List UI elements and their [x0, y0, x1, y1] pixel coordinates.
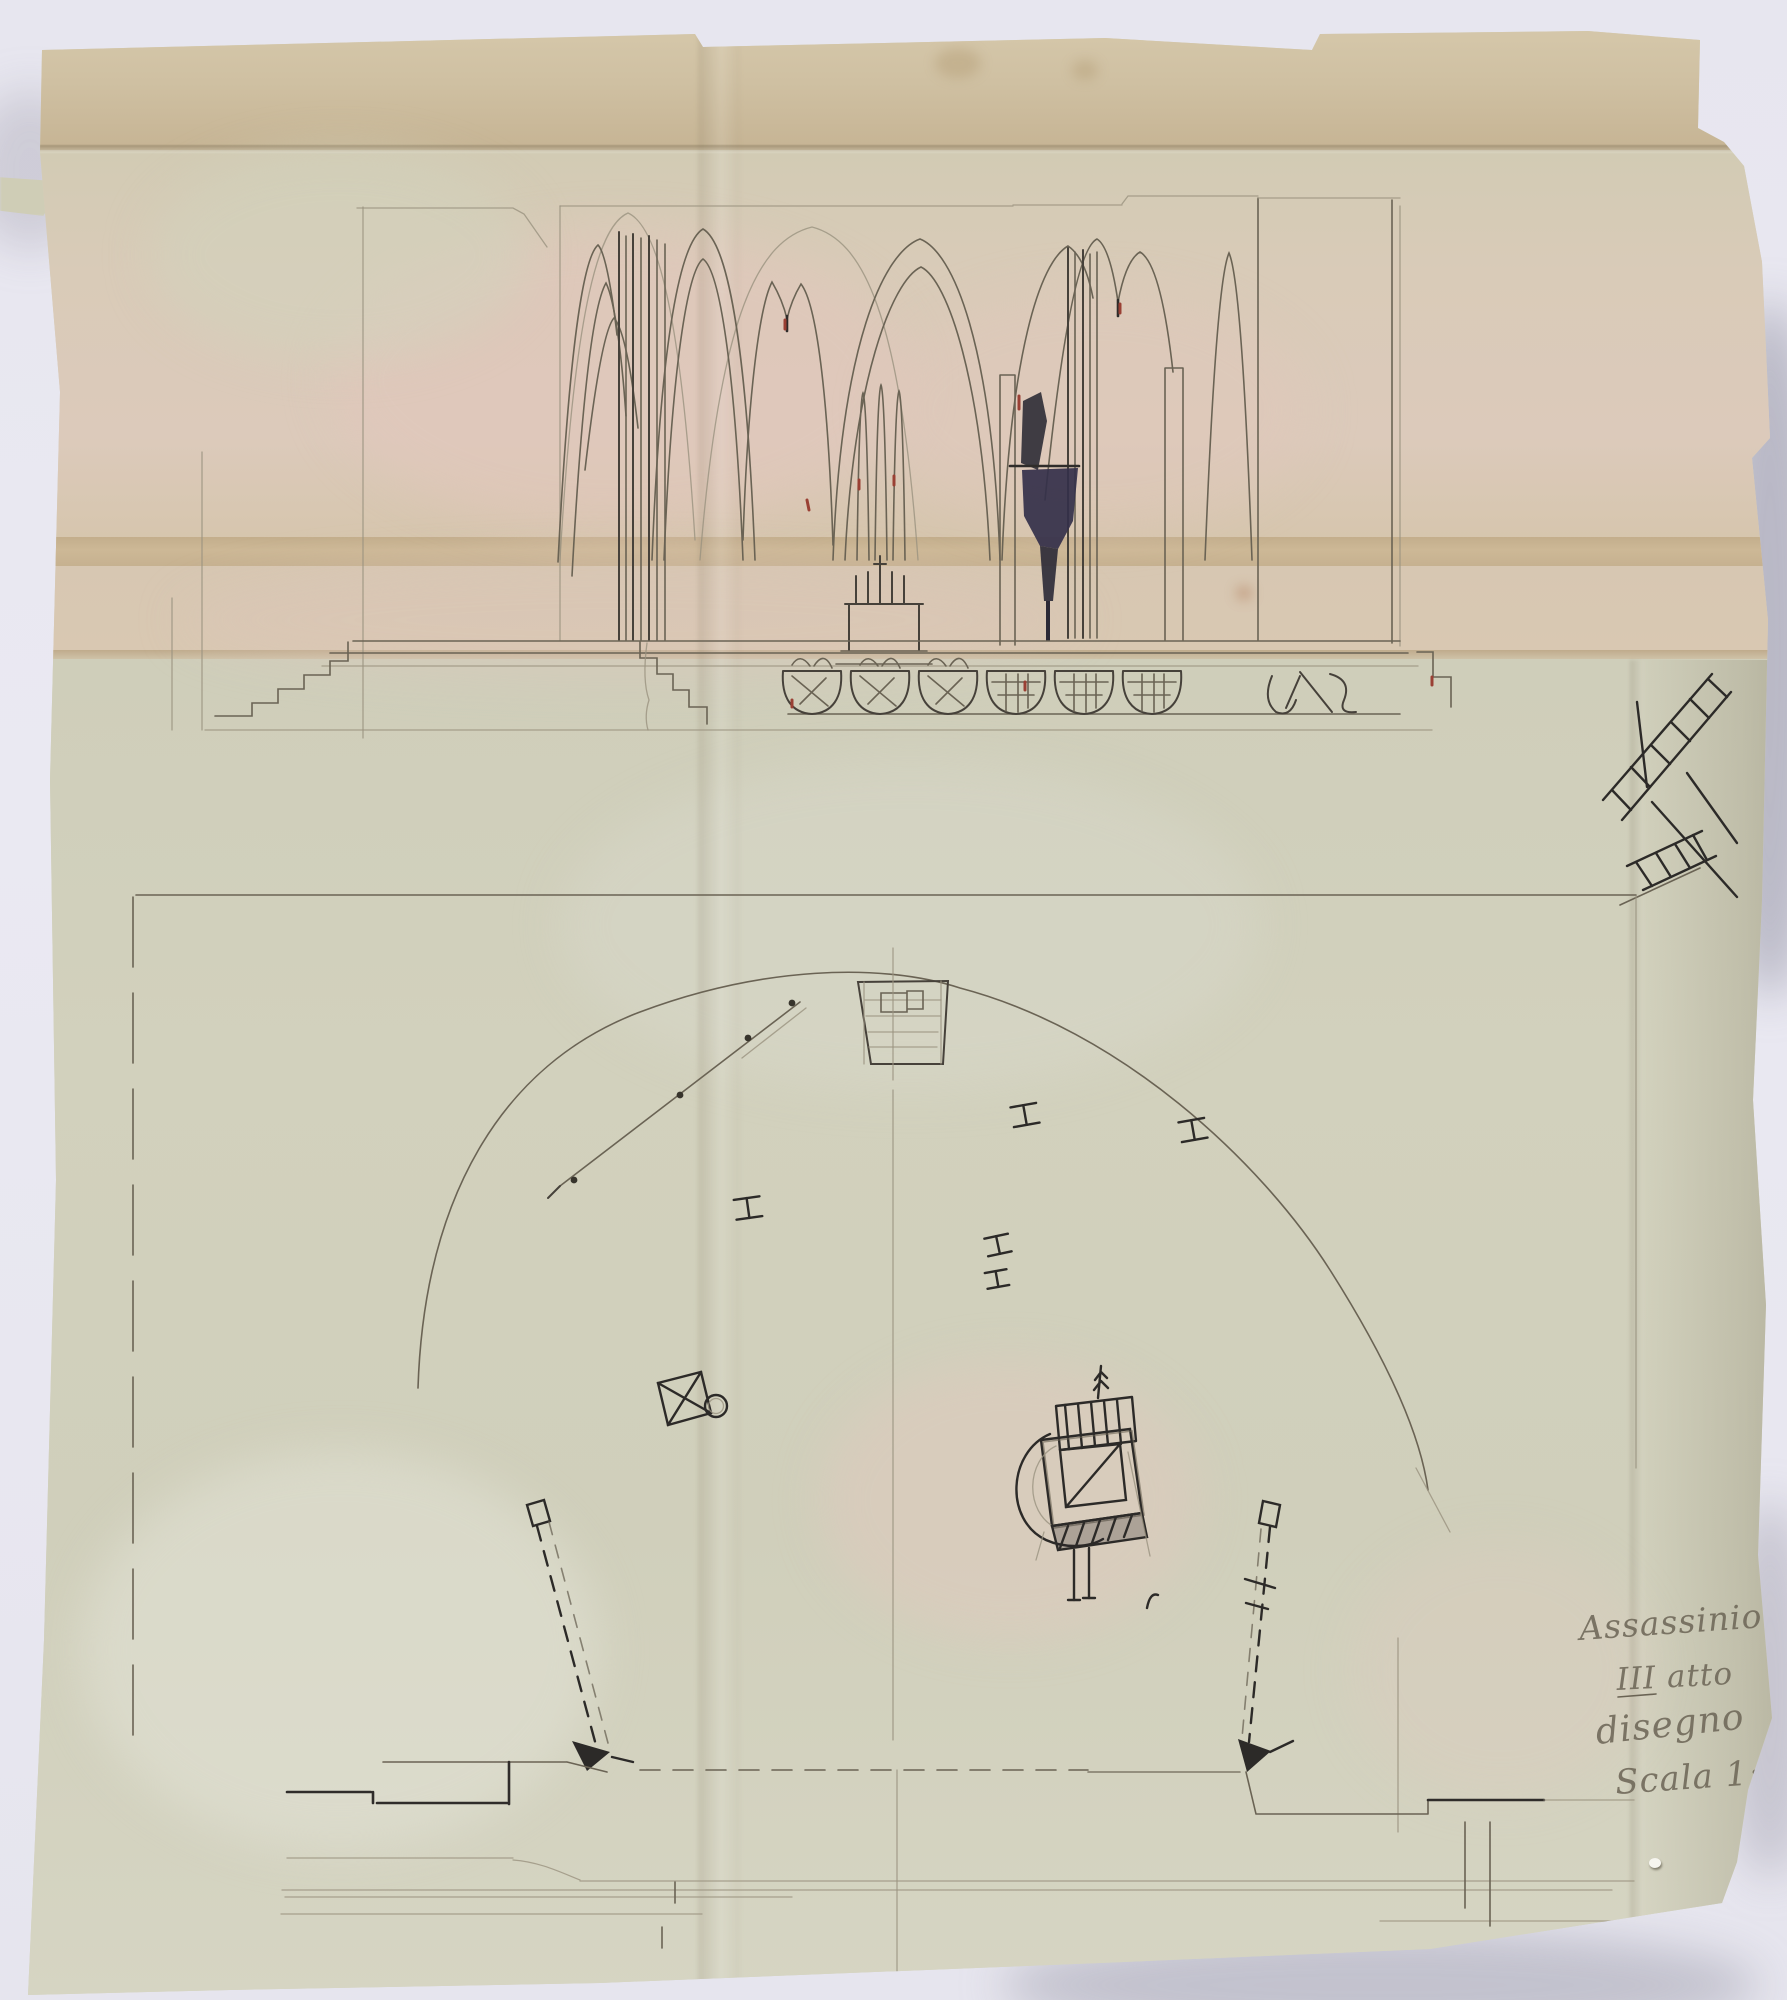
- plan-bench-mark: [985, 1269, 1009, 1289]
- plan-x-stool: [658, 1372, 727, 1425]
- altar-candlesticks: [836, 556, 932, 664]
- stage-frame-guides: [172, 196, 1258, 738]
- plan-dashed-track-left: [527, 1500, 633, 1771]
- stage-steps-center: [640, 642, 707, 730]
- stage-steps-left: [215, 642, 348, 716]
- scroll-ornament: [1268, 672, 1356, 714]
- stage-steps-right-end: [1417, 652, 1451, 707]
- plan-bench-mark: [734, 1196, 763, 1219]
- basket: [1055, 671, 1113, 714]
- basket: [919, 658, 977, 714]
- plan-faint-lines-right: [1398, 1468, 1450, 1832]
- plan-bench-mark: [1010, 1103, 1039, 1127]
- pencil-sketch-layer: Assassinio C III atto disegno Scala 1:: [0, 0, 1787, 2000]
- plan-diagonal-guide: [548, 1000, 806, 1198]
- basket: [987, 671, 1045, 714]
- elevation-sketch: [172, 196, 1451, 738]
- plan-border: [133, 895, 1636, 1755]
- handwriting-line-1: Assassinio C: [1575, 1594, 1787, 1649]
- handwriting-line-3: disegno: [1594, 1697, 1747, 1753]
- plan-throne-detail: [1016, 1366, 1158, 1608]
- basket: [851, 658, 909, 714]
- handwriting-line-4: Scala 1:: [1614, 1753, 1762, 1803]
- basket: [1123, 671, 1181, 714]
- flower-baskets: [783, 658, 1432, 714]
- plan-dashed-track-right: [1238, 1501, 1293, 1772]
- plan-bench-mark: [1178, 1118, 1207, 1142]
- handwriting-line-2: III atto: [1615, 1656, 1734, 1698]
- plan-bench-mark: [984, 1234, 1011, 1257]
- margin-steps-study: [1603, 674, 1737, 905]
- altar-lancets: [857, 385, 905, 560]
- photo-backdrop: Assassinio C III atto disegno Scala 1:: [0, 0, 1787, 2000]
- paper-sheet: Assassinio C III atto disegno Scala 1:: [0, 0, 1787, 2000]
- plan-altar-trapezoid: [858, 981, 948, 1064]
- plan-apse-arc: [418, 972, 1428, 1490]
- right-wall-panel: [1258, 198, 1400, 646]
- floor-plan-sketch: [133, 895, 1636, 1984]
